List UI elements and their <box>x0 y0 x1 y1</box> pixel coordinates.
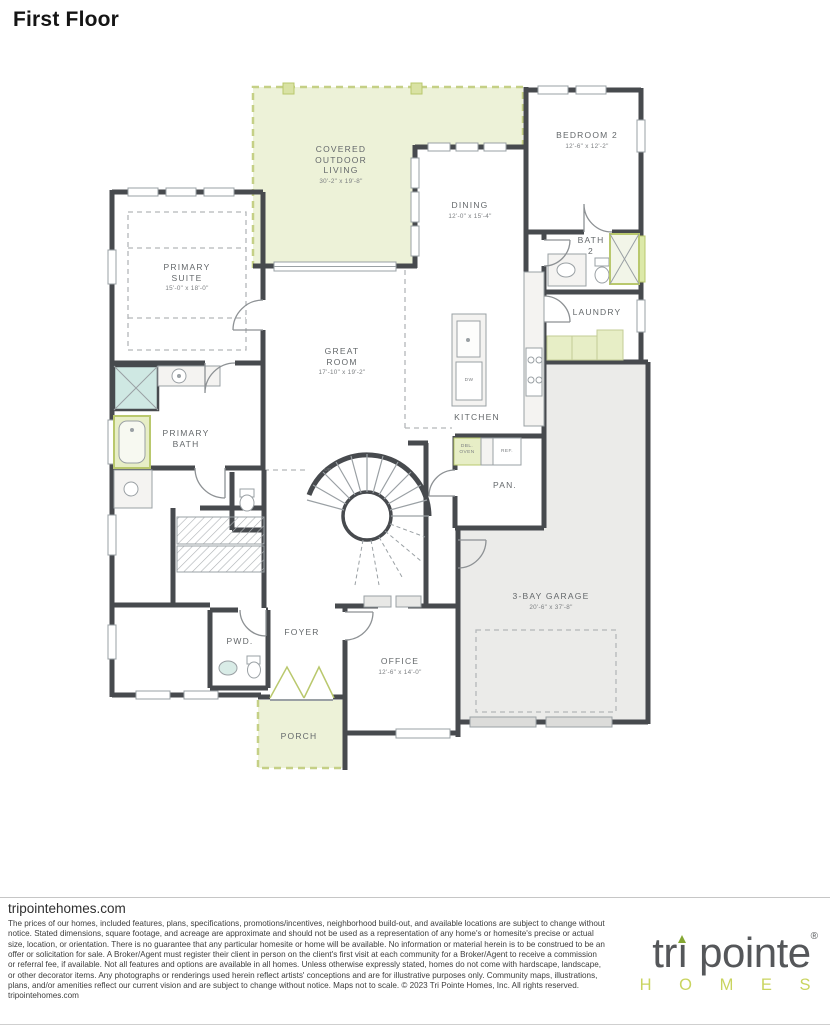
floorplan-drawing <box>0 0 830 880</box>
closet-rods <box>177 517 264 572</box>
legal-disclaimer: The prices of our homes, included featur… <box>8 919 605 1002</box>
front-door-swings <box>270 667 334 698</box>
logo-pointe: pointe <box>688 929 811 976</box>
logo-tr: tr <box>652 929 677 976</box>
floorplan-page: First Floor <box>0 0 830 1025</box>
laundry-counters <box>547 330 623 360</box>
tripointe-logo: trı pointe® H O M E S <box>603 914 818 994</box>
mud-benches <box>364 596 421 607</box>
logo-homes: H O M E S <box>603 976 822 994</box>
footer-divider <box>0 897 830 898</box>
logo-triangle-icon <box>678 935 686 943</box>
logo-wordmark: trı pointe® <box>603 914 818 976</box>
highlight-areas <box>253 83 648 768</box>
staircase <box>307 454 429 585</box>
website-text: tripointehomes.com <box>8 901 126 916</box>
logo-i: ı <box>677 930 688 976</box>
registered-mark: ® <box>811 931 818 942</box>
bath2-fixtures <box>548 234 639 286</box>
powder-fixtures <box>219 656 261 678</box>
